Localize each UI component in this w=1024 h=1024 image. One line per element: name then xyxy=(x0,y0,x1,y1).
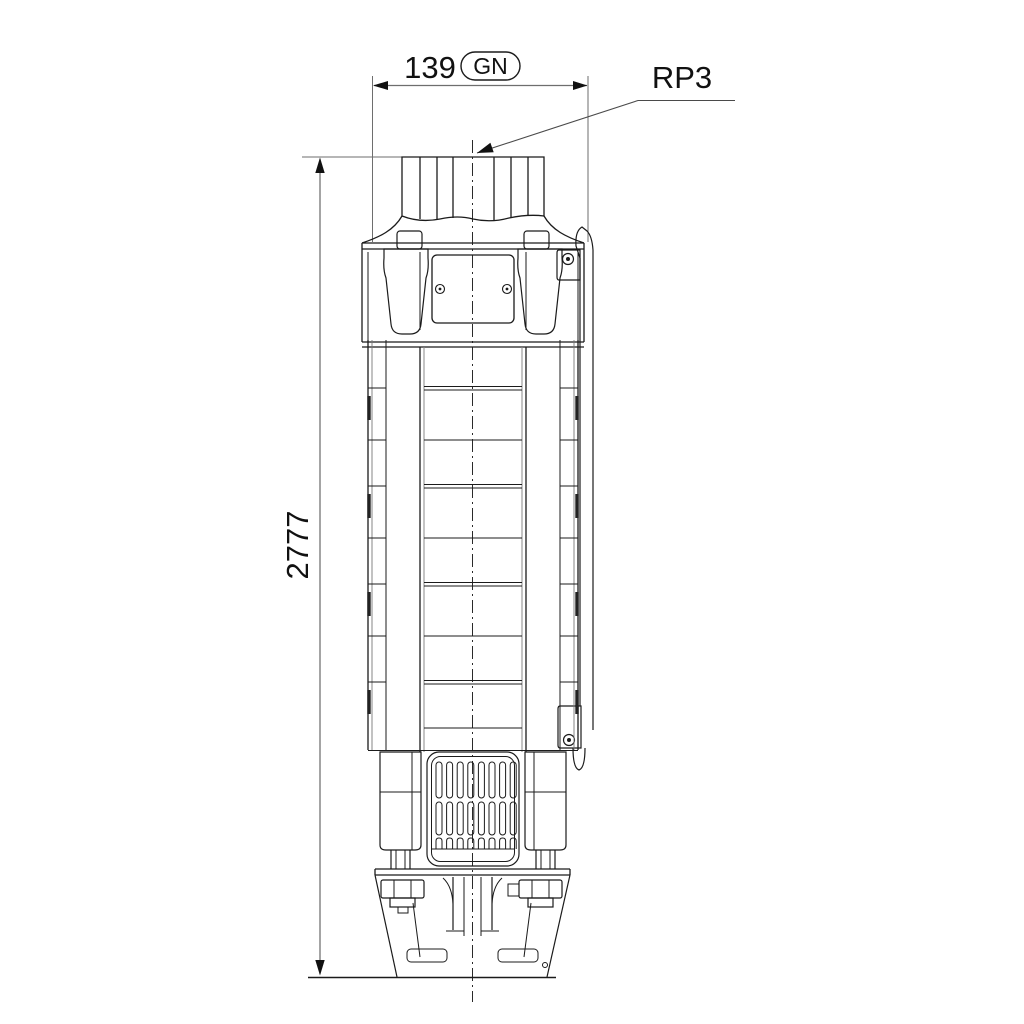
cable-guard xyxy=(557,227,593,770)
leader-arrow xyxy=(477,143,494,153)
connection-callout: RP3 xyxy=(477,60,735,153)
dim-width-value: 139 xyxy=(404,50,456,85)
dim-length-value: 2777 xyxy=(280,511,315,580)
pump-dimensional-drawing: 139 GN RP3 2777 xyxy=(0,0,1024,1024)
dim-arrow-up xyxy=(315,158,324,174)
pump-outline xyxy=(362,157,593,977)
gn-badge-label: GN xyxy=(473,53,508,79)
strap-clamp-right xyxy=(518,231,563,334)
dim-arrow-down xyxy=(315,960,324,976)
dimension-width: 139 GN xyxy=(373,50,589,242)
hex-bolt-right xyxy=(508,880,562,907)
strap-foot-left xyxy=(380,752,421,869)
dim-arrow-right xyxy=(573,81,588,90)
dim-arrow-left xyxy=(373,81,388,90)
strap-clamp-left xyxy=(384,231,429,334)
cable-guard-tip xyxy=(573,748,585,770)
strap-foot-right xyxy=(525,752,566,869)
connection-label: RP3 xyxy=(652,60,712,95)
interconnector-flange xyxy=(375,869,570,875)
strainer-slots xyxy=(432,762,516,849)
technical-drawing-page: 139 GN RP3 2777 xyxy=(0,0,1024,1024)
hex-bolt-left xyxy=(381,880,424,913)
